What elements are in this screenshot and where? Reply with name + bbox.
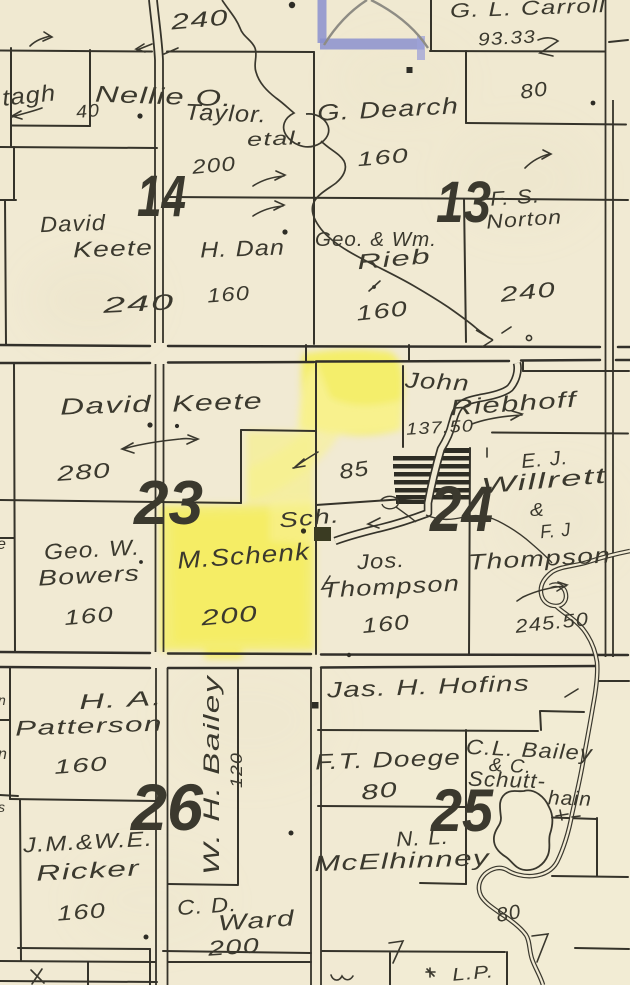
svg-text:240: 240: [169, 5, 230, 35]
svg-text:200: 200: [190, 153, 237, 179]
svg-text:80: 80: [519, 78, 550, 104]
svg-text:24: 24: [429, 473, 493, 545]
svg-text:Bowers: Bowers: [37, 560, 140, 590]
svg-text:200: 200: [199, 601, 259, 631]
svg-text:160: 160: [56, 899, 106, 925]
svg-text:David: David: [60, 390, 153, 419]
svg-text:hain: hain: [548, 787, 593, 811]
svg-text:H. A.: H. A.: [79, 687, 164, 714]
svg-text:280: 280: [55, 459, 112, 486]
svg-text:n: n: [0, 746, 8, 763]
svg-text:23: 23: [133, 469, 203, 538]
svg-text:F. J: F. J: [539, 520, 572, 544]
svg-text:25: 25: [430, 777, 494, 844]
svg-text:160: 160: [63, 603, 115, 630]
svg-text:David: David: [40, 210, 107, 237]
svg-text:14: 14: [137, 164, 186, 229]
svg-text:Jos.: Jos.: [355, 549, 405, 575]
svg-text:160: 160: [356, 145, 410, 171]
svg-text:Keete: Keete: [73, 235, 154, 263]
svg-text:80: 80: [495, 901, 523, 927]
svg-text:F. S.: F. S.: [490, 185, 541, 210]
svg-text:13: 13: [436, 170, 491, 235]
svg-text:e: e: [0, 536, 7, 553]
svg-text:85: 85: [338, 457, 371, 484]
svg-text:93.33: 93.33: [478, 26, 537, 49]
svg-text:160: 160: [361, 611, 411, 638]
svg-text:H. Dan: H. Dan: [200, 235, 286, 263]
svg-text:F.T. Doege: F.T. Doege: [315, 744, 462, 774]
svg-text:s: s: [0, 799, 6, 815]
svg-text:etal.: etal.: [247, 128, 306, 151]
svg-text:L.P.: L.P.: [451, 961, 495, 985]
svg-text:120: 120: [227, 752, 246, 788]
svg-text:80: 80: [360, 778, 399, 805]
svg-text:240: 240: [101, 289, 176, 318]
svg-text:200: 200: [206, 934, 261, 961]
svg-text:160: 160: [206, 282, 250, 307]
svg-text:160: 160: [53, 753, 108, 779]
svg-text:137.50: 137.50: [406, 416, 475, 439]
svg-text:John: John: [403, 367, 470, 395]
svg-text:Taylor.: Taylor.: [185, 99, 268, 128]
svg-text:Geo. W.: Geo. W.: [43, 535, 140, 565]
svg-text:&: &: [530, 500, 545, 520]
svg-text:n: n: [0, 692, 7, 708]
svg-text:26: 26: [129, 770, 204, 844]
svg-text:Keete: Keete: [172, 387, 264, 416]
